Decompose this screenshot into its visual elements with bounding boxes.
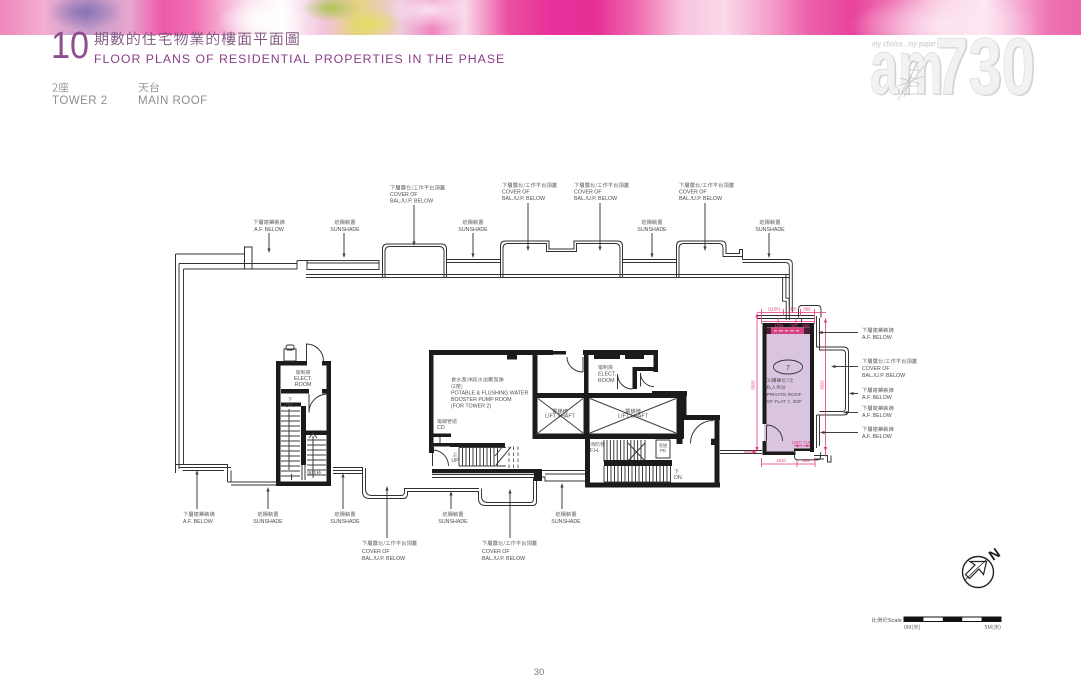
- svg-text:(1150): (1150): [768, 307, 780, 312]
- svg-text:COVER OF: COVER OF: [679, 190, 707, 196]
- svg-text:820: 820: [790, 307, 798, 312]
- svg-text:BAL./U.P. BELOW: BAL./U.P. BELOW: [679, 196, 722, 202]
- svg-text:COVER OF: COVER OF: [574, 190, 602, 196]
- svg-text:685: 685: [803, 323, 811, 328]
- svg-text:A.F. BELOW: A.F. BELOW: [862, 413, 892, 419]
- svg-text:685: 685: [803, 458, 811, 463]
- svg-text:(50): (50): [790, 323, 798, 328]
- svg-text:BOOSTER PUMP ROOM: BOOSTER PUMP ROOM: [451, 397, 512, 403]
- svg-text:COVER OF: COVER OF: [390, 192, 418, 198]
- svg-text:SUNSHADE: SUNSHADE: [253, 519, 283, 525]
- svg-text:COVER OF: COVER OF: [502, 190, 530, 196]
- svg-text:DN.: DN.: [674, 475, 683, 481]
- svg-text:DN.: DN.: [285, 403, 294, 409]
- svg-text:PD: PD: [660, 448, 666, 453]
- svg-text:(FOR TOWER 2): (FOR TOWER 2): [451, 404, 491, 410]
- svg-text:1810: 1810: [776, 458, 786, 463]
- svg-text:685: 685: [804, 307, 812, 312]
- svg-text:BAL./U.P. BELOW: BAL./U.P. BELOW: [362, 556, 405, 562]
- svg-text:BAL./U.P. BELOW: BAL./U.P. BELOW: [502, 196, 545, 202]
- svg-text:SUNSHADE: SUNSHADE: [438, 519, 468, 525]
- svg-text:OF FLAT 7, 30/F: OF FLAT 7, 30/F: [767, 399, 803, 405]
- svg-text:Scale: Scale: [888, 618, 902, 624]
- svg-text:CD: CD: [437, 425, 445, 431]
- svg-text:5825: 5825: [751, 380, 756, 390]
- svg-text:SUNSHADE: SUNSHADE: [551, 519, 581, 525]
- svg-text:SUNSHADE: SUNSHADE: [330, 519, 360, 525]
- svg-text:7: 7: [786, 365, 790, 372]
- svg-text:F.H.: F.H.: [590, 448, 599, 454]
- svg-text:SUNSHADE: SUNSHADE: [330, 227, 360, 233]
- svg-text:A.F. BELOW: A.F. BELOW: [254, 227, 284, 233]
- svg-text:ELECT.: ELECT.: [598, 372, 616, 378]
- svg-text:POTABLE & FLUSHING WATER: POTABLE & FLUSHING WATER: [451, 391, 528, 397]
- svg-text:A.F. BELOW: A.F. BELOW: [862, 395, 892, 401]
- svg-text:BAL./U.P. BELOW: BAL./U.P. BELOW: [482, 556, 525, 562]
- svg-text:(487) 713: (487) 713: [792, 440, 811, 445]
- svg-text:UP: UP: [451, 458, 459, 464]
- svg-text:SUNSHADE: SUNSHADE: [458, 227, 488, 233]
- svg-text:COVER OF: COVER OF: [862, 366, 890, 372]
- svg-text:BAL./U.P. BELOW: BAL./U.P. BELOW: [574, 196, 617, 202]
- svg-text:COVER OF: COVER OF: [362, 549, 390, 555]
- svg-text:LIFT SHAFT: LIFT SHAFT: [545, 414, 575, 420]
- svg-text:5825: 5825: [820, 380, 825, 390]
- svg-text:A.F. BELOW: A.F. BELOW: [183, 519, 213, 525]
- svg-text:ROOM: ROOM: [598, 378, 614, 384]
- svg-text:A.F. BELOW: A.F. BELOW: [862, 434, 892, 440]
- svg-text:BAL./U.P. BELOW: BAL./U.P. BELOW: [862, 373, 905, 379]
- svg-text:A.F. BELOW: A.F. BELOW: [862, 335, 892, 341]
- svg-text:1135: 1135: [774, 323, 784, 328]
- svg-text:BAL./U.P. BELOW: BAL./U.P. BELOW: [390, 199, 433, 205]
- svg-text:F.H.C: F.H.C: [307, 477, 320, 483]
- svg-text:COVER OF: COVER OF: [482, 549, 510, 555]
- svg-text:PRIVATE ROOF: PRIVATE ROOF: [767, 392, 802, 398]
- svg-text:SUNSHADE: SUNSHADE: [755, 227, 785, 233]
- svg-text:LIFT SHAFT: LIFT SHAFT: [618, 414, 648, 420]
- svg-text:SUNSHADE: SUNSHADE: [637, 227, 667, 233]
- svg-text:ROOM: ROOM: [295, 382, 311, 388]
